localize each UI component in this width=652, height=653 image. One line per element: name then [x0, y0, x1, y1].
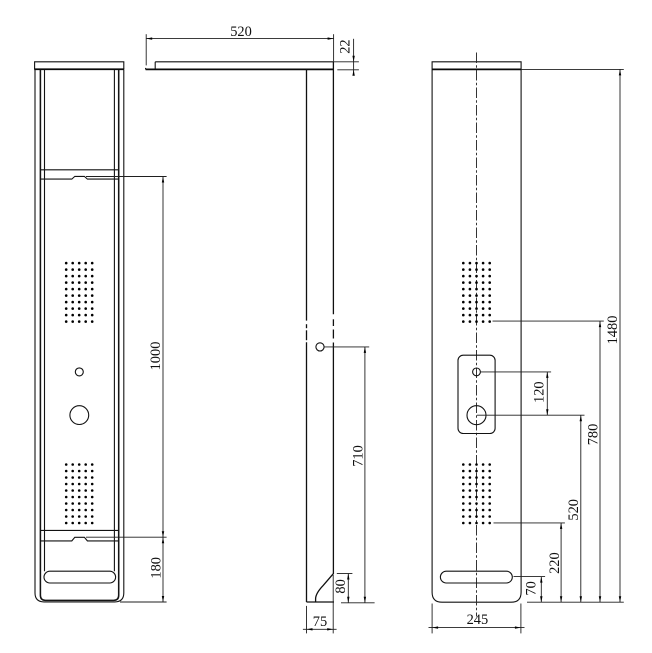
svg-text:520: 520: [230, 24, 252, 40]
svg-text:180: 180: [149, 557, 165, 579]
svg-text:520: 520: [566, 499, 582, 521]
svg-text:220: 220: [547, 552, 563, 574]
svg-text:120: 120: [531, 381, 547, 403]
svg-text:70: 70: [523, 581, 539, 595]
svg-text:75: 75: [313, 614, 327, 630]
svg-text:245: 245: [467, 612, 489, 628]
svg-text:80: 80: [333, 579, 349, 593]
svg-text:22: 22: [338, 39, 354, 53]
svg-text:780: 780: [585, 424, 601, 446]
svg-text:710: 710: [350, 445, 366, 467]
svg-text:1000: 1000: [148, 342, 164, 371]
svg-text:1480: 1480: [605, 316, 621, 345]
